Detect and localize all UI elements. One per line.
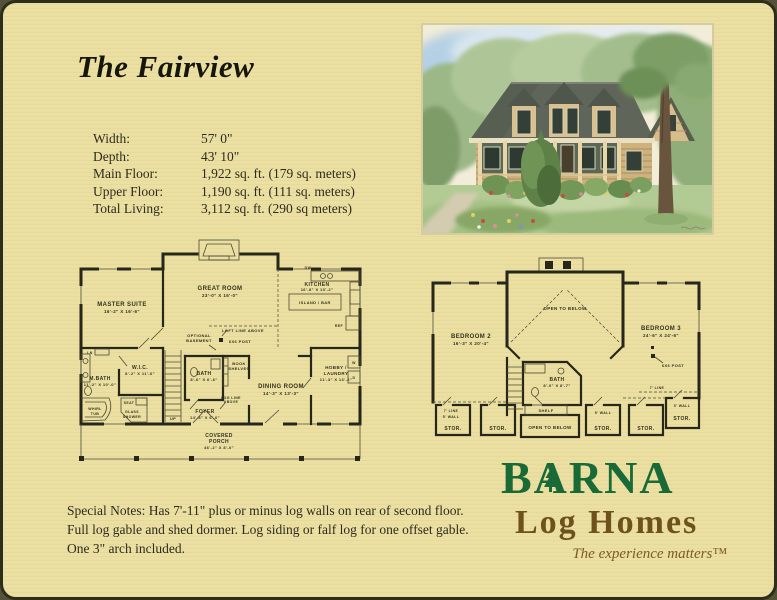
spec-row-upper-floor: Upper Floor: 1,190 sq. ft. (111 sq. mete…	[93, 183, 356, 201]
label-ref: REF	[335, 324, 344, 328]
label-5-wall-left: 5' WALL	[443, 415, 460, 419]
brand-subtitle: Log Homes	[515, 504, 727, 541]
spec-label: Main Floor:	[93, 165, 201, 183]
brand-text: BARNA	[501, 452, 675, 503]
label-shelf: SHELF	[538, 408, 553, 413]
room-dim-foyer: 14'-8" X 6'-0"	[190, 415, 220, 420]
label-up: UP	[170, 416, 176, 421]
label-stor-1: STOR.	[444, 426, 461, 432]
spec-row-depth: Depth: 43' 10"	[93, 148, 356, 166]
label-7-line-left: 7' LINE	[444, 409, 459, 413]
spec-value: 43' 10"	[201, 148, 239, 166]
spec-label: Width:	[93, 130, 201, 148]
label-5-wall-right: 5' WALL	[674, 404, 691, 408]
barna-logo: BARNA Log Homes The experience matters™	[501, 455, 727, 563]
spec-row-width: Width: 57' 0"	[93, 130, 356, 148]
label-open-to-below-top: OPEN TO BELOW	[543, 306, 587, 311]
label-post: 6X6 POST	[229, 339, 251, 344]
label-stor-3: STOR.	[594, 426, 611, 432]
room-dim-bath: 8'-6" X 6'-6"	[190, 377, 217, 382]
label-basement: BASEMENT	[186, 338, 212, 343]
label-5-wall-mid: 5' WALL	[595, 411, 612, 415]
room-label-bedroom2: BEDROOM 2	[451, 334, 491, 340]
room-dim-bedroom3: 24'-6" X 24'-6"	[643, 333, 679, 338]
pine-tree-icon	[543, 468, 558, 492]
room-dim-hobby: 11'-3" X 13'-2"	[320, 377, 352, 382]
brand-tagline: The experience matters™	[501, 546, 727, 563]
spec-value: 3,112 sq. ft. (290 sq meters)	[201, 200, 352, 218]
label-above: ABOVE	[224, 400, 239, 404]
label-stor-4: STOR.	[637, 426, 654, 432]
room-label-dining: DINING ROOM	[258, 384, 304, 390]
spec-value: 1,190 sq. ft. (111 sq. meters)	[201, 183, 355, 201]
room-dim-master-suite: 16'-2" X 16'-6"	[104, 309, 140, 314]
room-label-hobby: HOBBY /	[325, 365, 347, 370]
room-dim-bath-upper: 8'-0" X 8'-7"	[543, 383, 570, 388]
room-label-laundry: LAUNDRY	[324, 371, 349, 376]
special-notes: Special Notes: Has 7'-11" plus or minus …	[67, 501, 481, 558]
label-open-to-below-bottom: OPEN TO BELOW	[528, 425, 572, 430]
room-dim-great-room: 23'-0" X 16'-0"	[202, 293, 238, 298]
room-dim-bedroom2: 16'-3" X 20'-4"	[453, 341, 489, 346]
spec-row-total-living: Total Living: 3,112 sq. ft. (290 sq mete…	[93, 200, 356, 218]
spec-list: Width: 57' 0" Depth: 43' 10" Main Floor:…	[93, 130, 356, 218]
room-label-bedroom3: BEDROOM 3	[641, 326, 681, 332]
room-label-great-room: GREAT ROOM	[198, 286, 243, 292]
spec-label: Total Living:	[93, 200, 201, 218]
label-dw: DW	[305, 266, 312, 270]
house-rendering	[421, 23, 714, 235]
room-dim-dining: 14'-3" X 13'-3"	[263, 391, 299, 396]
room-dim-kitchen: 16'-8" X 13'-2"	[301, 287, 334, 292]
upper-floor-interior-walls	[436, 346, 699, 437]
label-seat: SEAT	[124, 401, 135, 405]
main-floor-plan: MASTER SUITE 16'-2" X 16'-6" GREAT ROOM …	[59, 230, 391, 470]
brochure-page: The Fairview Width: 57' 0" Depth: 43' 10…	[0, 0, 777, 600]
label-shelves: SHELVES	[228, 366, 249, 371]
post-marker-upper	[651, 354, 655, 358]
label-glass: GLASS	[125, 410, 139, 414]
page-title: The Fairview	[77, 49, 254, 85]
label-tub: TUB	[91, 412, 99, 416]
room-dim-wic: 8'-2" X 11'-6"	[125, 371, 155, 376]
label-island-bar: ISLAND / BAR	[299, 300, 331, 305]
spec-value: 57' 0"	[201, 130, 233, 148]
stairs-main	[165, 350, 181, 422]
spec-label: Depth:	[93, 148, 201, 166]
room-dim-mbath: 11'-2" X 10'-0"	[84, 382, 116, 387]
label-post-upper: 6X6 POST	[662, 363, 684, 368]
label-whirl: WHIRL	[88, 407, 102, 411]
room-dim-porch: 46'-2" X 8'-0"	[204, 445, 234, 450]
label-stor-5: STOR.	[673, 416, 690, 422]
porch-posts	[79, 456, 360, 461]
label-stor-2: STOR.	[489, 426, 506, 432]
label-dryer: D	[353, 376, 356, 380]
loft-line	[209, 269, 278, 348]
label-loft-line: LOFT LINE ABOVE	[222, 328, 264, 333]
spec-value: 1,922 sq. ft. (179 sq. meters)	[201, 165, 356, 183]
post-marker	[219, 338, 223, 342]
fireplace	[199, 240, 239, 260]
brand-name: BARNA	[501, 455, 727, 501]
spec-label: Upper Floor:	[93, 183, 201, 201]
label-ln: LN	[87, 351, 93, 355]
room-label-master-suite: MASTER SUITE	[97, 302, 146, 308]
label-shower: SHOWER	[123, 415, 141, 419]
upper-floor-plan: OPEN TO BELOW BEDROOM 2 16'-3" X 20'-4" …	[411, 250, 719, 450]
spec-row-main-floor: Main Floor: 1,922 sq. ft. (179 sq. meter…	[93, 165, 356, 183]
label-7-line-right: 7' LINE	[650, 386, 665, 390]
label-washer: W	[352, 361, 356, 365]
